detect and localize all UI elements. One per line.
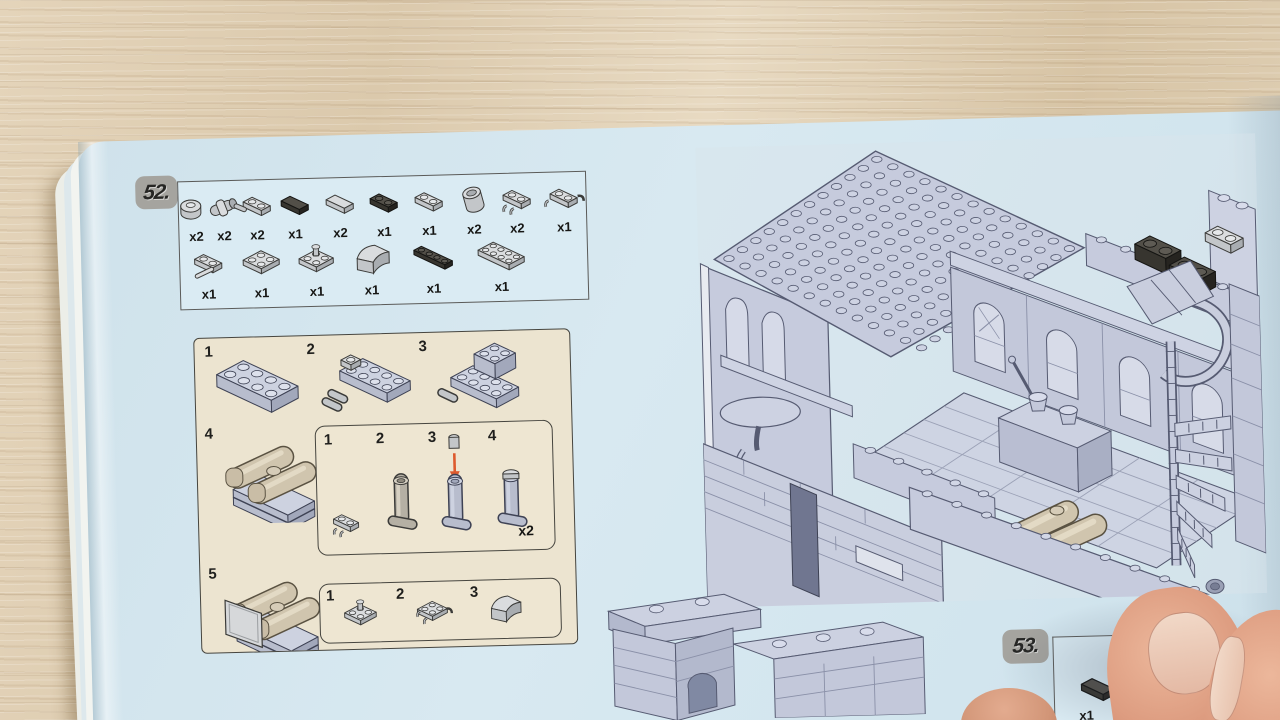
inset-b-number: 3 — [470, 585, 479, 600]
clip-subassembly-inset: 1 2 3 — [319, 578, 562, 644]
inset-b-step1-part — [336, 591, 385, 638]
part-plate-1x2-with-clips: x1 — [537, 176, 590, 234]
inset-b-step3-part — [480, 585, 529, 632]
assembly-panel: 1 2 3 4 5 1 — [193, 328, 578, 654]
part-quantity: x1 — [408, 281, 460, 295]
substep-1-assembly — [209, 352, 307, 420]
part-quantity: x1 — [236, 286, 288, 300]
plate-2x2-with-pin-icon — [290, 238, 343, 283]
lower-wall — [733, 621, 925, 719]
part-quantity: x1 — [346, 283, 398, 297]
photo-of-lego-instruction-manual: 52. x2 x2x2x1x2x1x1 x2x2x1x1x1x1 x1x1x1 … — [0, 0, 1280, 720]
slope-2x2-curved-icon — [345, 237, 398, 282]
plate-1x2-with-handle-icon — [182, 241, 235, 286]
pipe-subassembly-inset: 1 2 3 4 x2 — [315, 420, 556, 556]
part-slope-2x2-curved: x1 — [345, 237, 399, 297]
secondary-illustration-corner-tower — [582, 577, 1015, 720]
inset-a-number: 4 — [488, 428, 497, 443]
plate-1x4-dark-icon — [407, 235, 460, 280]
plate-2x4-icon — [475, 233, 528, 278]
substep-3-assembly — [420, 340, 534, 419]
inset-a-number: 1 — [324, 432, 333, 447]
part-quantity: x1 — [291, 284, 343, 298]
inset-a-multiplier: x2 — [518, 523, 534, 537]
substep-5-assembly — [210, 572, 324, 653]
part-quantity: x1 — [476, 279, 528, 293]
part-plate-1x4-dark: x1 — [407, 235, 461, 295]
part-plate-1x2-with-clip: x2 — [490, 177, 543, 235]
inset-b-number: 2 — [396, 587, 405, 602]
substep-4-assembly — [207, 436, 321, 525]
part-quantity: x1 — [183, 287, 235, 301]
part-plate-2x4: x1 — [475, 233, 529, 293]
inset-b-step2-part — [408, 587, 457, 634]
inset-a-step1-part — [321, 499, 370, 546]
substep-2-assembly — [307, 347, 413, 420]
part-plate-2x2-with-pin: x1 — [290, 238, 344, 298]
inset-a-step3-pipe-with-arrow — [426, 429, 481, 546]
inset-a-step2-pipe — [373, 464, 427, 545]
plate-1x2-with-clip-icon — [490, 177, 543, 222]
part-plate-1x2-with-handle: x1 — [182, 241, 236, 301]
part-quantity: x1 — [538, 220, 590, 234]
step-52-label: 52. — [142, 180, 171, 205]
inset-b-number: 1 — [326, 588, 335, 603]
plate-2x2-icon — [235, 240, 288, 285]
plate-1x2-with-clips-icon — [537, 176, 590, 221]
step-52-parts-box: x2 x2x2x1x2x1x1 x2x2x1x1x1x1 x1x1x1 — [177, 171, 589, 311]
part-plate-2x2: x1 — [235, 240, 289, 300]
inset-a-number: 2 — [376, 431, 385, 446]
main-isometric-illustration — [695, 133, 1267, 608]
